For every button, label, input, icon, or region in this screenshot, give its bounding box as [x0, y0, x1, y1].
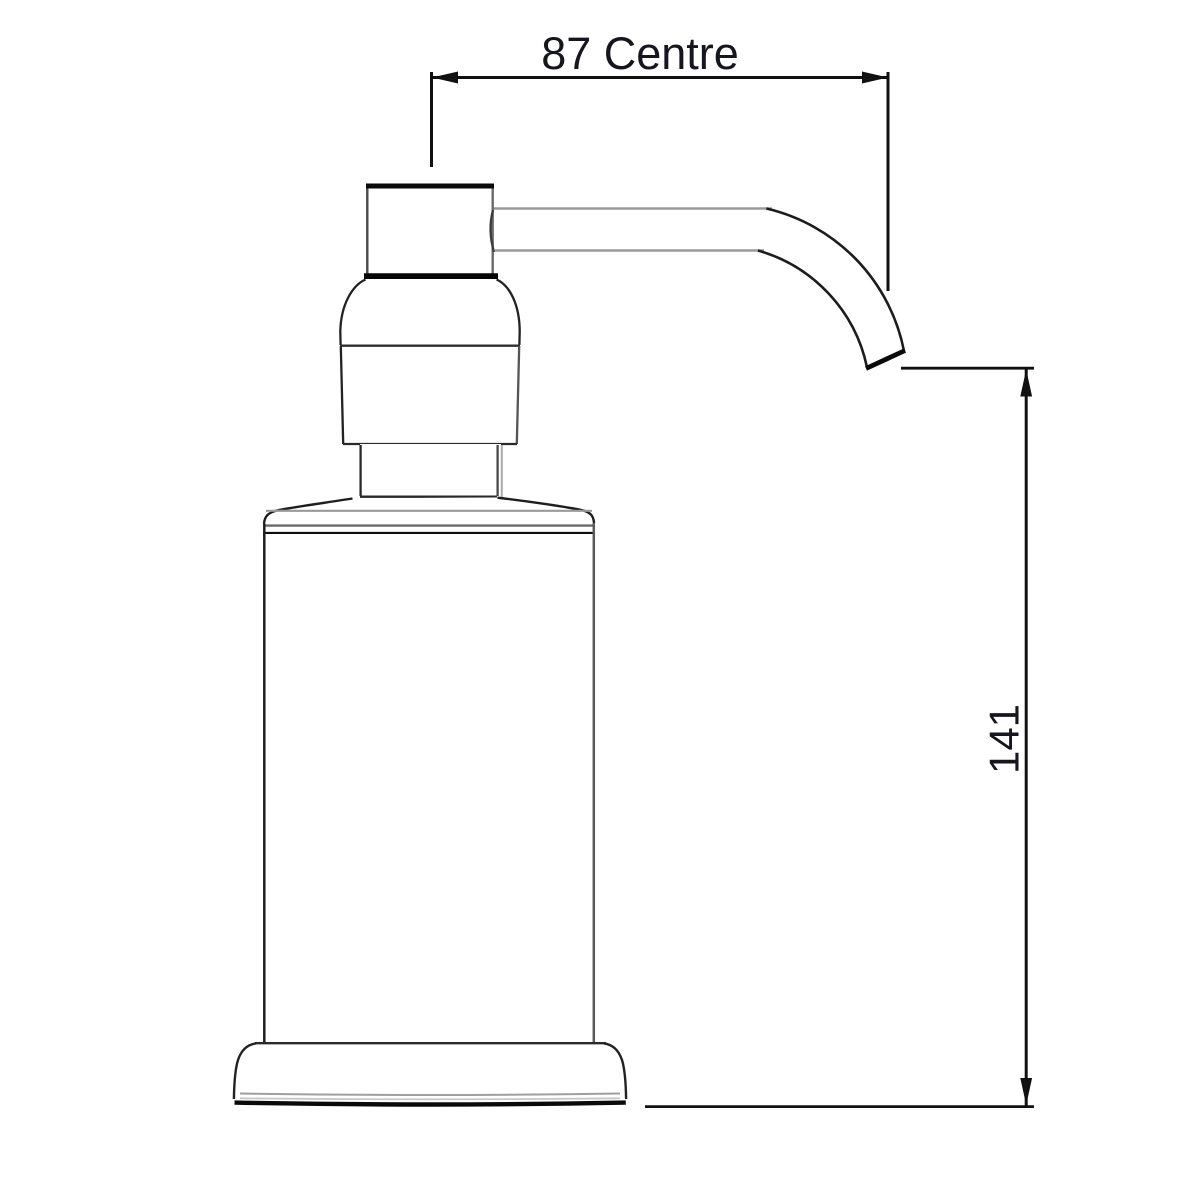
- svg-text:87 Centre: 87 Centre: [541, 28, 739, 79]
- svg-text:141: 141: [981, 704, 1028, 774]
